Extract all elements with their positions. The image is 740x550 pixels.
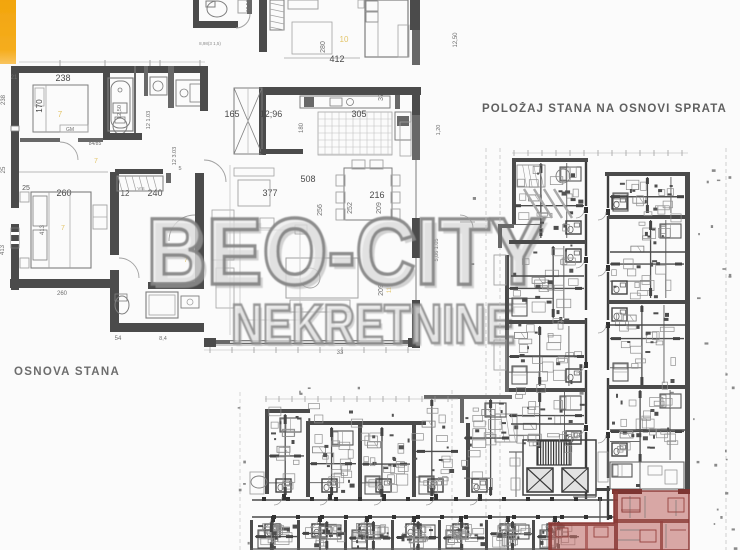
svg-text:12 1.03: 12 1.03	[146, 111, 152, 129]
svg-text:260: 260	[57, 291, 68, 297]
svg-text:413: 413	[40, 224, 46, 235]
svg-text:10: 10	[340, 35, 349, 44]
svg-text:25: 25	[22, 185, 30, 192]
svg-text:238: 238	[1, 94, 7, 105]
svg-text:413: 413	[0, 244, 6, 255]
svg-text:305: 305	[351, 109, 366, 119]
svg-text:12,50: 12,50	[453, 32, 459, 48]
svg-text:12,50: 12,50	[117, 105, 123, 119]
svg-text:VIS: VIS	[137, 186, 144, 191]
svg-text:15: 15	[154, 69, 161, 75]
svg-text:NEKRETNINE: NEKRETNINE	[231, 293, 515, 355]
svg-text:7: 7	[94, 158, 98, 165]
svg-text:170: 170	[35, 99, 44, 113]
svg-text:84/85: 84/85	[89, 141, 102, 147]
svg-text:1,20: 1,20	[436, 125, 442, 136]
svg-text:7: 7	[58, 110, 63, 119]
svg-text:280: 280	[320, 41, 327, 53]
svg-text:8,98(3 1,5): 8,98(3 1,5)	[199, 41, 221, 46]
svg-text:GM: GM	[66, 127, 74, 133]
svg-text:5: 5	[178, 166, 181, 172]
svg-text:12,50: 12,50	[246, 0, 252, 12]
svg-text:25: 25	[1, 166, 7, 173]
svg-text:2M: 2M	[192, 68, 202, 75]
svg-text:180: 180	[299, 122, 305, 133]
svg-text:508: 508	[300, 174, 315, 184]
svg-text:8,4: 8,4	[159, 336, 167, 342]
svg-text:165: 165	[224, 109, 239, 119]
svg-text:412: 412	[329, 54, 344, 64]
svg-text:260: 260	[56, 188, 71, 198]
svg-text:12;96: 12;96	[260, 109, 283, 119]
svg-text:54: 54	[115, 336, 122, 342]
svg-text:21: 21	[11, 75, 18, 81]
svg-text:238: 238	[55, 73, 70, 83]
svg-text:12 3.03: 12 3.03	[172, 147, 178, 165]
svg-text:7: 7	[61, 225, 65, 232]
